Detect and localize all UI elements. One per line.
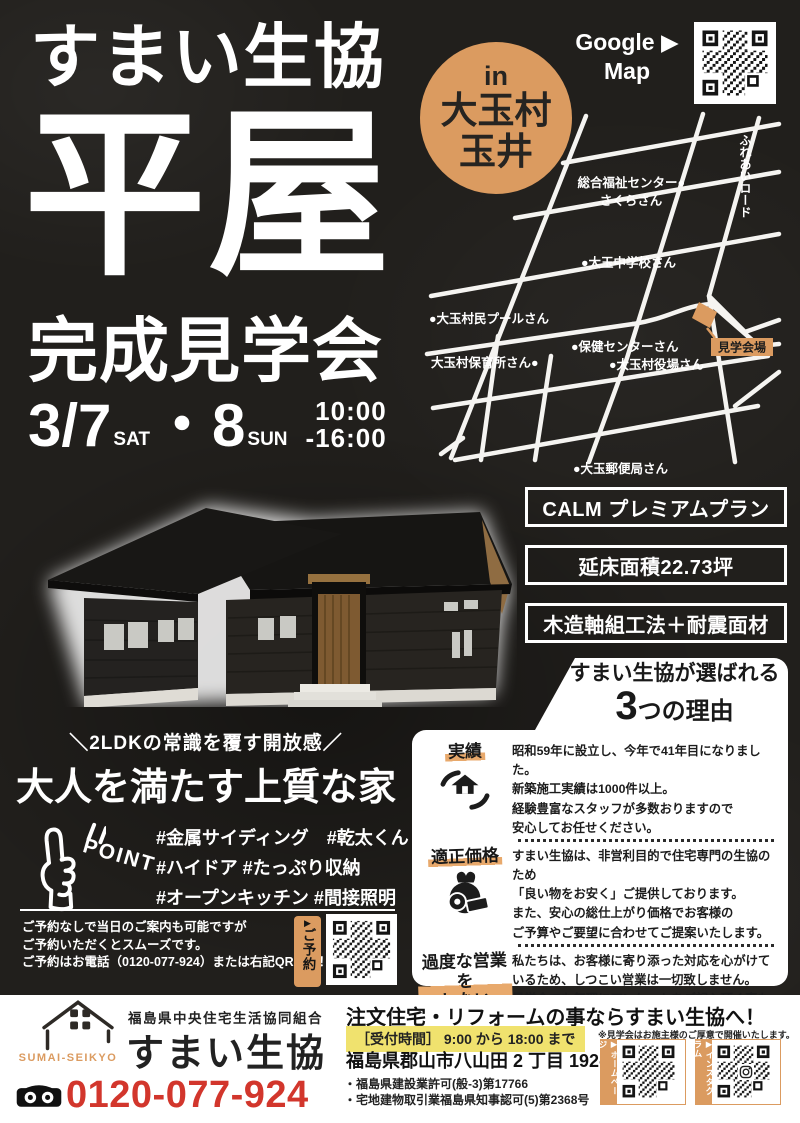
venue-label: 見学会場 [717, 340, 766, 355]
reasons-heading-line2: 3つの理由 [615, 686, 733, 726]
reasons-heading-line1: すまい生協が選ばれる [570, 662, 780, 685]
event-date: 3/7 SAT ・8 SUN 10:00 -16:00 [28, 398, 387, 453]
google-map-qr-code [694, 22, 776, 104]
logo-caption: SUMAI-SEIKYO [12, 1052, 124, 1064]
reason-row-track-record: 実績 昭和59年に設立し、今年で41年目になりました。 新築施工実績は1000件… [418, 738, 780, 838]
map-label-hoken: ●保健センターさん [571, 339, 679, 354]
event-time: 10:00 -16:00 [306, 398, 387, 453]
date-day2-label: SUN [247, 429, 287, 451]
house-logo-icon [36, 998, 120, 1052]
catch-eyebrow: ＼2LDKの常識を覆す開放感／ [0, 728, 412, 755]
reserve-line3: ご予約はお電話（0120-077-924）または右記QRから！ [22, 954, 331, 972]
hashtag-line1: #金属サイディング #乾太くん [156, 823, 409, 853]
reason-text: すまい生協は、非営利目的で住宅専門の生協のため 「良い物をお安く」ご提供しており… [512, 843, 780, 943]
flyer-root: すまい生協 平屋 完成見学会 3/7 SAT ・8 SUN 10:00 -16:… [0, 0, 800, 1123]
time-to: -16:00 [306, 423, 387, 453]
company-name: すまい生協 [126, 1022, 326, 1077]
reason-row-fair-price: 適正価格 すまい生協は、非営利目的で住宅専門の生協のため 「良い物をお安く」ご提… [418, 843, 780, 943]
map-road-name: ふれあいロード [738, 134, 752, 218]
map-label-yakuba: ●大玉村役場さん [609, 357, 705, 372]
catch-copy: 大人を満たす上質な家 [0, 756, 412, 811]
reserve-qr-code [326, 914, 397, 985]
time-from: 10:00 [315, 396, 387, 426]
map-label-sakura: さくらさん [600, 194, 663, 208]
phone-row: 0120-077-924 [16, 1074, 309, 1117]
instagram-glyph-icon [738, 1064, 754, 1080]
reserve-note: ご予約なしで当日のご案内も可能ですが ご予約いただくとスムーズです。 ご予約はお… [22, 919, 331, 972]
homepage-qr-block: ▶ホームページ [600, 1039, 686, 1105]
reserve-divider [20, 909, 395, 911]
reasons-panel: 実績 昭和59年に設立し、今年で41年目になりました。 新築施工実績は1000件… [412, 730, 788, 986]
freedial-icon [16, 1082, 62, 1110]
reasons-heading: すまい生協が選ばれる 3つの理由 [535, 658, 788, 730]
google-map-label: Google ▶ Map [566, 28, 688, 86]
homepage-qr-code [617, 1040, 685, 1104]
footer: SUMAI-SEIKYO 福島県中央住宅生活協同組合 すまい生協 0120-07… [0, 995, 800, 1123]
reason-label: 実績 [445, 741, 486, 762]
feature-hashtags: #金属サイディング #乾太くん #ハイドア #たっぷり収納 #オープンキッチン … [156, 823, 409, 913]
badge-line2: 玉井 [459, 132, 533, 173]
location-badge: in 大玉村 玉井 [420, 42, 572, 194]
license-line1: ・福島県建設業許可(般-3)第17766 [344, 1075, 528, 1092]
phone-number: 0120-077-924 [66, 1074, 309, 1117]
homepage-qr-label: ▶ホームページ [601, 1040, 617, 1104]
reserve-line1: ご予約なしで当日のご案内も可能ですが [22, 919, 331, 937]
license-line2: ・宅地建物取引業福島県知事認可(5)第2368号 [344, 1091, 589, 1108]
instagram-qr-label: ▶インスタグラム [696, 1040, 712, 1104]
instagram-qr-block: ▶インスタグラム [695, 1039, 781, 1105]
spec-plan: CALM プレミアムプラン [525, 487, 787, 527]
date-day1: 3/7 [28, 399, 111, 453]
address: 福島県郡山市八山田 2 丁目 192-2 [346, 1047, 615, 1073]
map-label-pool: ●大玉村民プールさん [429, 311, 550, 326]
spec-structure: 木造軸組工法＋耐震面材 [525, 603, 787, 643]
badge-prefix: in [484, 63, 508, 90]
reason-text: 昭和59年に設立し、今年で41年目になりました。 新築施工実績は1000件以上。… [512, 738, 780, 838]
brand-title: すまい生協 [30, 22, 385, 92]
reserve-tag: ▶ ご予約 [294, 916, 321, 987]
badge-line1: 大玉村 [441, 90, 552, 133]
triangle-icon: ▶ [304, 919, 311, 928]
dotted-divider [518, 839, 774, 842]
map-label-post: ●大玉郵便局さん [573, 461, 669, 476]
reason-label: 適正価格 [428, 846, 503, 868]
reasons-number: 3 [615, 684, 637, 728]
spec-area: 延床面積22.73坪 [525, 545, 787, 585]
reserve-tag-label: ご予約 [298, 928, 318, 972]
date-day1-label: SAT [113, 429, 150, 451]
event-subtitle: 完成見学会 [28, 316, 383, 386]
point-hand-icon [30, 820, 106, 912]
date-day2: ・8 [152, 399, 245, 453]
map-label-fukushi: 総合福祉センター● [577, 175, 685, 190]
price-pouch-icon [438, 871, 492, 919]
main-title: 平屋 [24, 104, 392, 286]
hands-house-icon [438, 766, 492, 814]
map-label-hoiku: 大玉村保育所さん● [431, 355, 539, 370]
hashtag-line2: #ハイドア #たっぷり収納 [156, 853, 409, 883]
dotted-divider [518, 944, 774, 947]
map-label-school: ●大玉中学校さん [581, 255, 677, 270]
house-rendering [12, 462, 517, 707]
reserve-line2: ご予約いただくとスムーズです。 [22, 937, 331, 955]
instagram-qr-code [712, 1040, 780, 1104]
